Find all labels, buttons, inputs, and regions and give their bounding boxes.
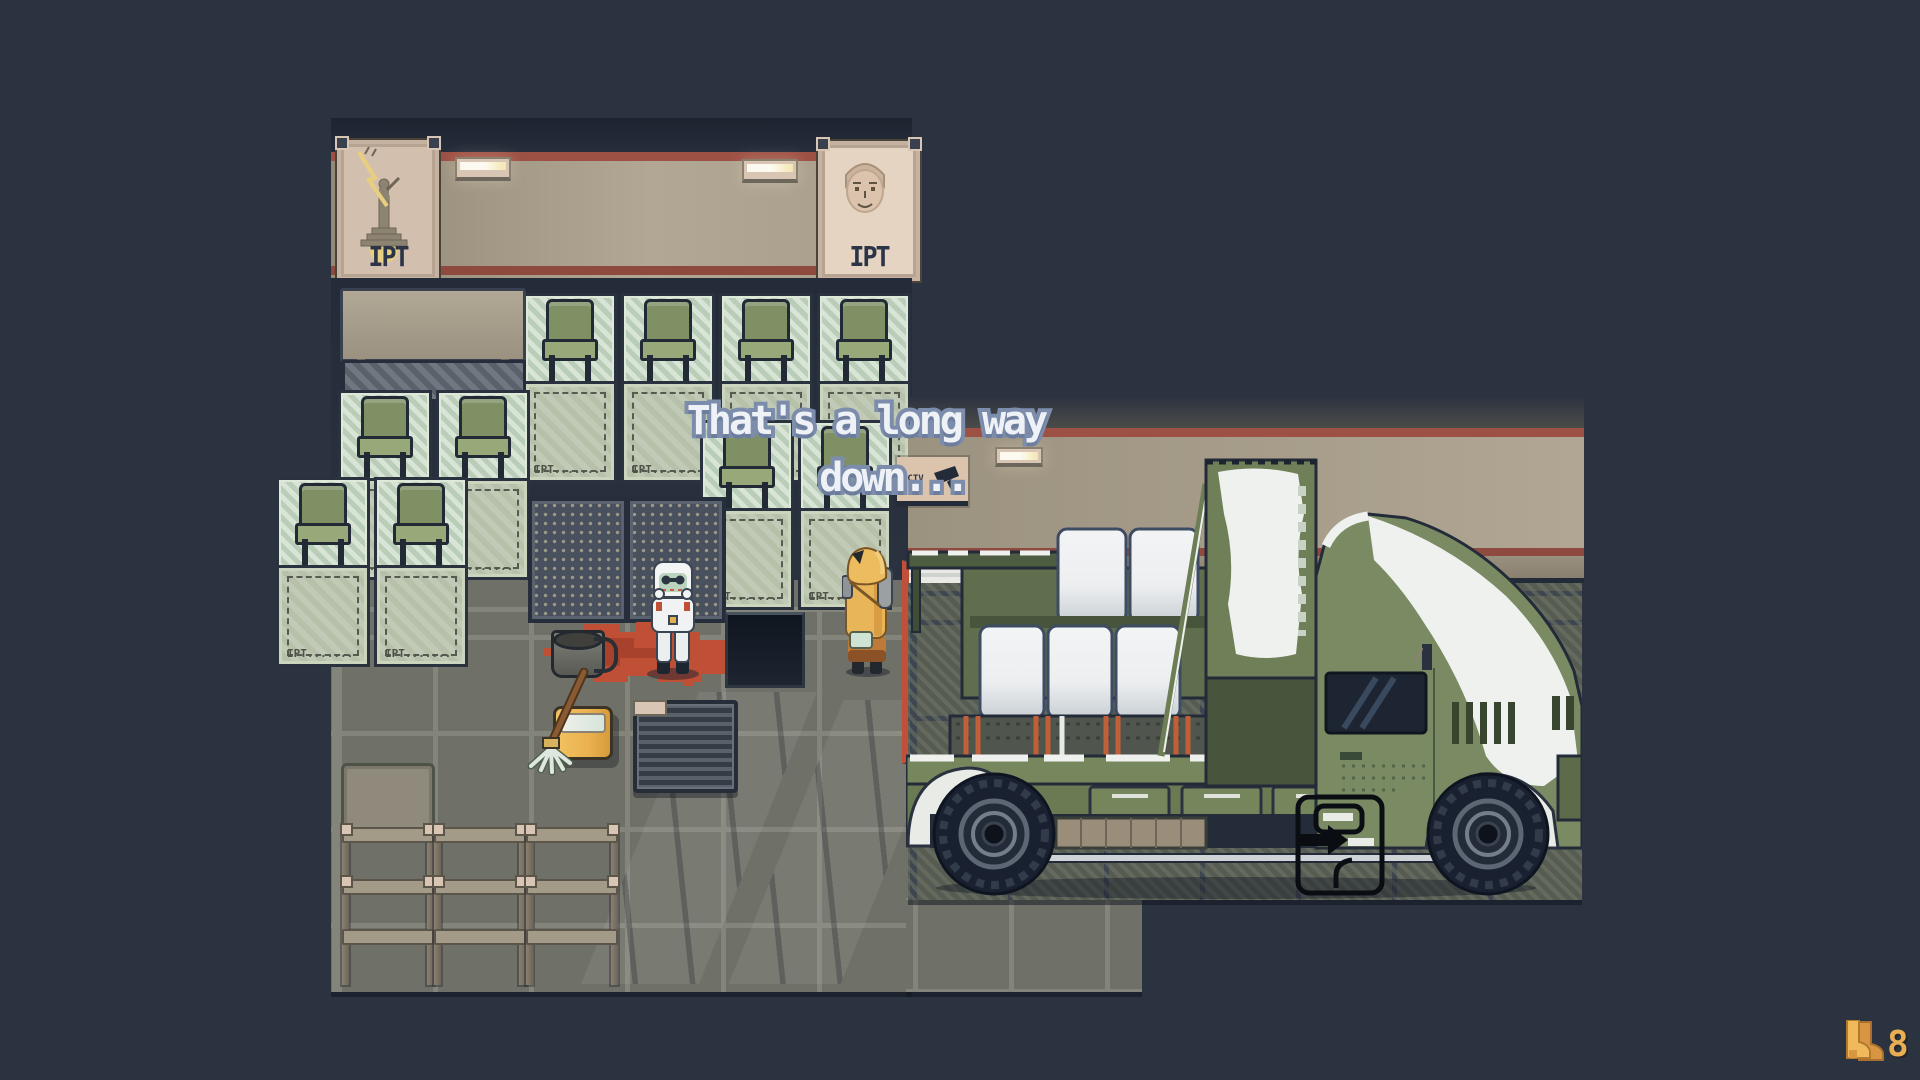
truck-front-wheel (1428, 774, 1548, 894)
military-truck (906, 456, 1582, 902)
truck-rear-wheel (934, 774, 1054, 894)
poster-pin-icon (335, 136, 349, 150)
boots-count: 8 (1887, 1024, 1909, 1065)
yellow-hazmat-character (842, 546, 898, 678)
poster-label: IPT (341, 241, 435, 273)
storage-shelf (526, 827, 618, 985)
poster-label: IPT (822, 241, 916, 273)
boots-icon (1843, 1020, 1887, 1064)
booth-chair (738, 299, 794, 385)
storage-shelf (434, 827, 526, 985)
poster-pin-icon (908, 137, 922, 151)
dialogue-line-1: That's a long way (687, 398, 1045, 444)
storage-shelf (342, 827, 434, 985)
booth-floor-label: IPT....... (287, 647, 353, 660)
dialogue-line-2: down... (819, 455, 967, 501)
grille-highlight (633, 700, 667, 716)
booth-floor-label: IPT....... (632, 463, 698, 476)
floor-grille (633, 700, 738, 793)
booth-chair (640, 299, 696, 385)
wall-table (340, 288, 526, 362)
floor-hatch (725, 612, 805, 688)
booth-floor-pad: IPT....... (276, 565, 370, 667)
mop (518, 668, 614, 778)
propaganda-poster-portrait: IPT (818, 141, 920, 281)
ceiling-light (742, 159, 798, 183)
booth-chair (357, 396, 413, 482)
booth-chair (295, 483, 351, 569)
tiled-floor (906, 898, 1142, 992)
booth-floor-pad: IPT....... (523, 381, 617, 483)
poster-pin-icon (816, 137, 830, 151)
white-hazmat-character (644, 560, 702, 682)
floor-mat (341, 763, 435, 835)
booth-chair (542, 299, 598, 385)
propaganda-poster-monument: IPT (337, 140, 439, 281)
booth-chair (836, 299, 892, 385)
seat-booth: IPT....... (276, 477, 370, 667)
door-enter-arrow-icon[interactable] (1290, 794, 1388, 896)
booth-chair (393, 483, 449, 569)
seat-booth: IPT....... (374, 477, 468, 667)
booth-chair (455, 396, 511, 482)
seat-booth: IPT....... (523, 293, 617, 483)
ceiling-light (455, 157, 511, 181)
booth-floor-pad: IPT....... (374, 565, 468, 667)
poster-pin-icon (427, 136, 441, 150)
game-viewport: IPT IPT IPT....... IPT....... (0, 0, 1920, 1080)
booth-floor-label: IPT....... (385, 647, 451, 660)
booth-floor-label: IPT....... (534, 463, 600, 476)
hud-boots-counter: 8 (1843, 1020, 1913, 1068)
